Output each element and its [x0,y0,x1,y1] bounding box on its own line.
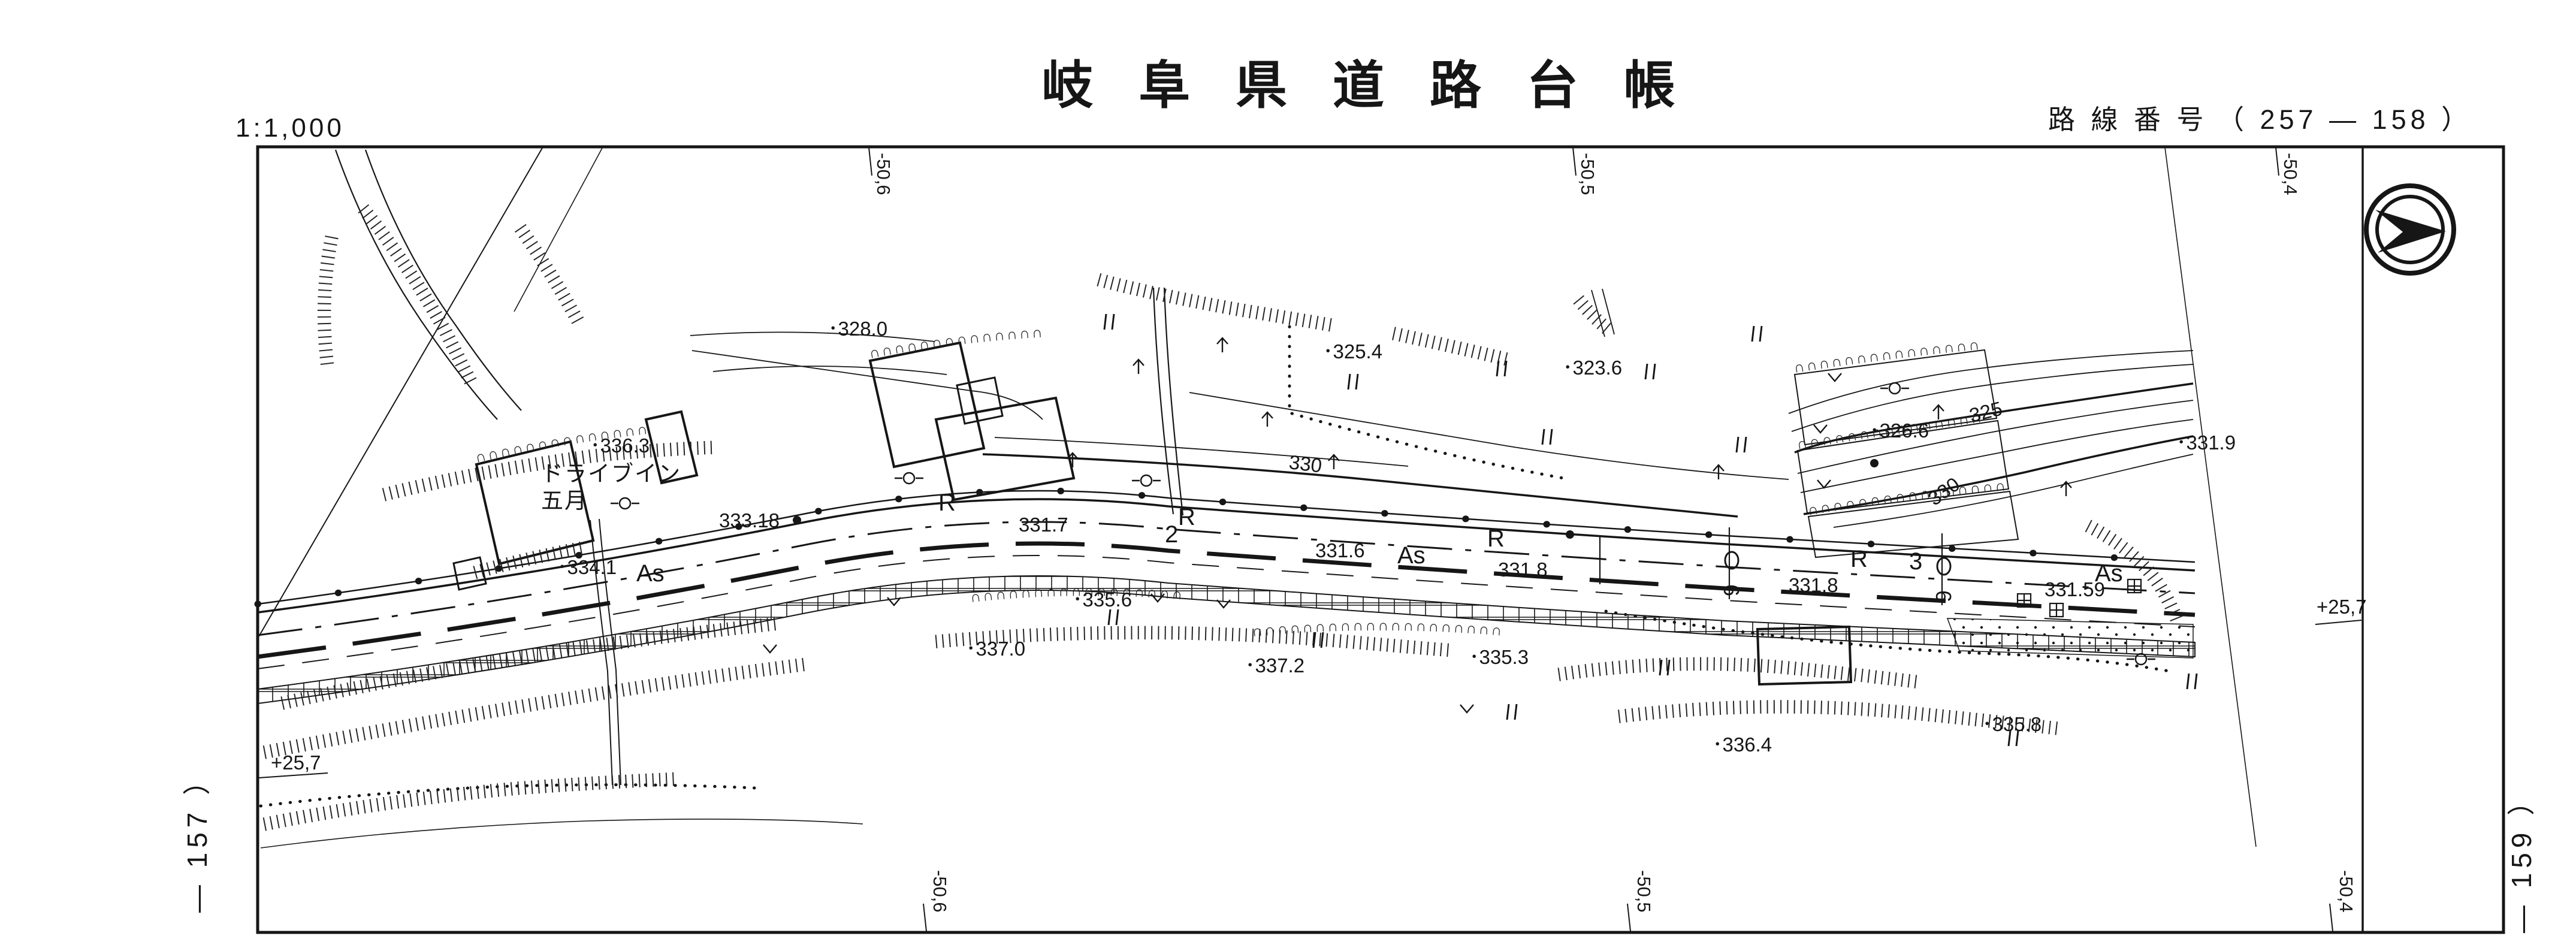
spot-elevation: ･336.4 [1713,733,1772,756]
texture-row: ||||||||||||||||| [514,222,588,328]
km-post-circle [1725,552,1738,569]
spot-elevation: ･336.3 [590,434,650,457]
grid-tick-bottom [2330,904,2333,931]
grass-icon [1828,373,1841,381]
spot-elevation: ･326.6 [1870,419,1929,442]
field-icon [1104,314,1114,330]
page-title: 岐 阜 県 道 路 台 帳 [1041,57,1690,114]
light-icon [2061,482,2071,496]
place-name: 五月 [541,488,588,513]
tree-icon [895,473,923,484]
field-icon [1737,437,1746,452]
texture-row: ∩∩∩∩∩∩∩∩∩∩∩∩∩∩∩ [1793,336,1982,376]
grid-tick-bottom [1627,904,1630,931]
texture-row: ∩∩∩∩∩∩∩∩∩∩∩∩∩∩ [868,324,1045,361]
km-number: 2 [1165,521,1178,548]
texture-row: ||||||||||||||||||||||||||||||||||||||||… [1556,655,1922,690]
north-arrow-icon [2366,186,2454,273]
grid-label-bottom: -50,6 [929,870,950,913]
contour-label: 330 [1288,451,1323,476]
spot-elevation: ･337.0 [966,638,1025,660]
grass-icon [1814,425,1827,433]
road-elevation: 331.7 [1019,514,1068,536]
dot-icon [793,516,801,524]
lane-label: R [1850,546,1868,572]
place-name: ドライブイン [541,461,681,486]
light-icon [1328,455,1339,469]
contour-label: 330 [1924,473,1964,510]
station-number: 6 [1931,590,1956,602]
spot-elevation: ･331.9 [2176,431,2236,454]
spot-elevation: ･328.0 [828,318,887,340]
route-number-label: 路 線 番 号 [2048,104,2208,135]
lane-label: R [1487,526,1505,552]
dot-icon [1566,530,1574,539]
field-icon [1507,704,1517,720]
surface-type-label: As [2095,560,2123,587]
km-number: 3 [1909,548,1922,575]
texture-row: |||||||||||||||||||| [317,234,341,369]
road-elevation: 331.8 [1789,574,1838,596]
grid-label-top: -50,5 [1577,153,1598,195]
field-icon [1348,374,1358,390]
grid-tick-top [1573,147,1576,176]
surface-type-label: As [636,560,665,587]
right-sheet-ref: — 159 ） [2506,783,2537,933]
texture-row: ||||||||||||||||||||||||||||||||||||||||… [261,655,809,759]
left-sheet-ref: — 157 ） [182,763,213,913]
field-icon [1542,429,1552,445]
field-icon [1752,326,1762,342]
map-frame [258,147,2503,932]
sheet-frame [258,147,2503,932]
header: 1:1,000 岐 阜 県 道 路 台 帳 路 線 番 号 （ 257 — 15… [235,57,2472,143]
surface-type-label: As [1397,542,1426,569]
texture-row: ∩∩∩∩∩∩∩∩∩∩∩∩∩∩∩∩ [1806,477,2008,519]
grass-icon [1460,705,1473,712]
coord-label-right: +25,7 [2317,596,2367,618]
slope-hachures: ||||||||||||||||||||||||||||||||||||||||… [261,202,2187,832]
grid-label-bottom: -50,5 [1633,870,1654,913]
spot-elevation: ･335.8 [1982,713,2042,735]
spot-elevation: ･337.2 [1245,654,1304,677]
texture-row: |||||||||||||||||| [1391,325,1512,367]
spot-elevation: ･335.3 [1469,646,1529,668]
route-number-value: （ 257 — 158 ） [2217,104,2472,135]
road-elevation: 331.8 [1498,558,1548,581]
road-ledger-map: 1:1,000 岐 阜 県 道 路 台 帳 路 線 番 号 （ 257 — 15… [0,0,2576,942]
field-icon [1109,609,1118,625]
paved-patch [1947,618,2193,658]
spot-elevation: ･325.4 [1323,340,1382,363]
road-elevation: 331.6 [1315,539,1365,561]
tree-icon [1132,475,1161,486]
spot-elevation: ･323.6 [1563,357,1622,379]
light-icon [1133,360,1144,374]
contour-label: 325 [1967,397,2004,427]
lane-label: R [938,490,956,516]
coord-tick-right [2315,620,2361,624]
tree-icon [611,498,639,509]
km-post-circle [1937,558,1950,575]
contour-lines [690,332,2193,527]
coord-tick-left [259,773,328,778]
grass-icon [763,645,777,653]
scale-label: 1:1,000 [235,113,345,143]
road-ledger-sheet: 1:1,000 岐 阜 県 道 路 台 帳 路 線 番 号 （ 257 — 15… [0,0,2576,942]
lane-label: R [1178,504,1195,530]
field-icon [1645,364,1655,379]
grid-tick-top [2276,147,2279,176]
grid-label-bottom: -50,4 [2336,870,2357,913]
grid-label-top: -50,6 [873,153,894,195]
spot-elevation: ･334.1 [557,556,617,578]
texture-row: ||||||||||||||||||||||||||||||||||||||||… [261,770,678,832]
light-icon [1262,412,1273,427]
grid-tick-top [869,147,872,176]
generated-map-labels: ･328.0･325.4･323.6･326.6･331.9･336.3･334… [541,147,2357,931]
texture-row: |||||||||||||||||||||||||||||||||||| [1095,271,1336,333]
grid-label-top: -50,4 [2280,153,2301,195]
road-elevation: 333.18 [719,509,780,532]
spot-elevation: ･335.6 [1073,588,1132,611]
light-icon [1217,338,1228,352]
station-number: 6 [1719,584,1744,596]
dot-icon [1870,459,1879,467]
light-icon [1713,465,1724,479]
box-icon [2050,603,2063,617]
field-icon [2187,674,2197,689]
grid-tick-bottom [923,904,926,931]
